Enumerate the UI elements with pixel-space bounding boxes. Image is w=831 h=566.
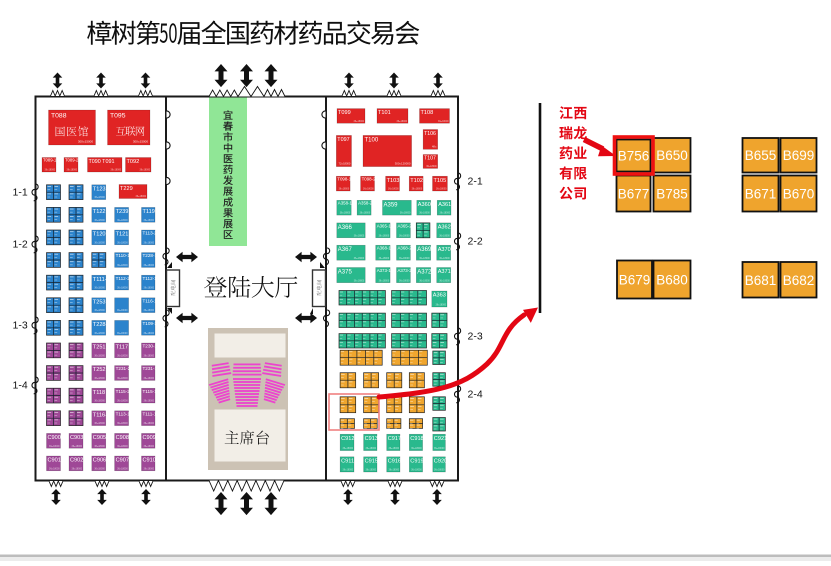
svg-text:T229: T229 [120,186,133,192]
svg-text:B655: B655 [745,148,777,163]
svg-text:T089-2: T089-2 [65,158,79,163]
svg-text:T118: T118 [93,390,105,396]
svg-text:36m18000: 36m18000 [117,446,128,448]
svg-text:36m18000: 36m18000 [343,470,354,472]
svg-text:36m18000: 36m18000 [354,121,365,123]
svg-text:36m18000: 36m18000 [72,468,83,470]
svg-text:36m18000: 36m18000 [117,468,128,470]
svg-text:T103: T103 [387,178,400,184]
svg-text:A365-1: A365-1 [377,223,392,228]
svg-text:36m18000: 36m18000 [144,265,155,267]
svg-text:T121: T121 [116,232,129,238]
svg-text:B680: B680 [656,273,688,288]
svg-text:T109-2: T109-2 [143,321,158,326]
svg-text:36m18000: 36m18000 [94,468,105,470]
svg-text:A369: A369 [417,247,432,253]
svg-text:36m18000: 36m18000 [94,401,105,403]
svg-text:T122: T122 [93,209,106,215]
svg-text:C903: C903 [70,435,83,441]
svg-text:A359: A359 [384,202,399,208]
svg-text:36m18000: 36m18000 [144,333,155,335]
svg-text:T110-1: T110-1 [116,253,131,258]
svg-text:36m18000: 36m18000 [117,401,128,403]
svg-text:36m18000: 36m18000 [411,470,422,472]
svg-text:36m18000: 36m18000 [438,121,449,123]
svg-text:36m18000: 36m18000 [144,468,155,470]
svg-text:36m18000: 36m18000 [354,280,365,282]
svg-text:T120: T120 [93,232,106,238]
svg-text:C902: C902 [70,458,83,464]
svg-text:36m18000: 36m18000 [399,258,410,260]
svg-text:C911: C911 [341,458,354,464]
svg-text:T112-2: T112-2 [116,276,131,281]
svg-text:T111-2: T111-2 [93,277,110,283]
svg-text:36m18000: 36m18000 [411,448,422,450]
svg-text:A373-2: A373-2 [398,268,413,273]
svg-text:36m18000: 36m18000 [379,235,390,237]
svg-text:300m15000: 300m15000 [78,140,94,144]
svg-text:36m18000: 36m18000 [400,213,411,215]
svg-text:36m18000: 36m18000 [419,280,430,282]
svg-text:36m18000: 36m18000 [360,213,371,215]
svg-text:36m18000: 36m18000 [354,258,365,260]
svg-text:36m18000: 36m18000 [340,213,351,215]
svg-text:T102: T102 [410,178,423,184]
svg-text:36m18000: 36m18000 [434,448,445,450]
svg-text:A368-1: A368-1 [377,246,392,251]
svg-text:T106: T106 [424,131,436,137]
svg-text:T116-2: T116-2 [93,412,110,418]
svg-text:36m18000: 36m18000 [117,310,128,312]
svg-text:36m18000: 36m18000 [419,258,430,260]
svg-text:C912: C912 [341,436,354,442]
svg-text:36m18000: 36m18000 [399,280,410,282]
svg-text:72m18000: 72m18000 [339,161,351,165]
svg-text:A365-2: A365-2 [398,223,413,228]
svg-text:36m18000: 36m18000 [49,446,60,448]
svg-text:T116-1: T116-1 [143,298,158,303]
svg-text:C908: C908 [116,435,129,441]
svg-text:2-3: 2-3 [468,331,483,343]
svg-text:T123: T123 [93,186,106,192]
svg-text:A361: A361 [438,202,451,208]
svg-text:A363: A363 [433,293,446,299]
svg-text:T111-1: T111-1 [143,411,157,416]
svg-text:B681: B681 [745,273,777,288]
svg-text:B670: B670 [783,187,815,202]
svg-text:T108: T108 [421,110,434,116]
svg-text:T089-1: T089-1 [43,158,57,163]
svg-text:A375: A375 [338,270,353,276]
svg-text:T112-1: T112-1 [143,276,158,281]
svg-text:36m18000: 36m18000 [94,378,105,380]
svg-text:C909: C909 [143,435,156,441]
svg-text:C915: C915 [365,458,378,464]
svg-text:T230-1: T230-1 [143,344,158,349]
svg-text:T239: T239 [116,209,129,215]
svg-text:B682: B682 [783,273,815,288]
svg-text:C919: C919 [410,458,423,464]
svg-text:C907: C907 [116,458,129,464]
svg-text:36m18000: 36m18000 [117,355,128,357]
svg-text:T101: T101 [378,110,391,116]
svg-text:36m18000: 36m18000 [354,235,365,237]
svg-text:36m18000: 36m18000 [94,242,105,244]
svg-text:B650: B650 [656,148,688,163]
svg-text:T228-1: T228-1 [143,253,158,258]
svg-text:A373-1: A373-1 [377,268,392,273]
svg-text:C917: C917 [388,436,401,442]
svg-text:36m18000: 36m18000 [94,423,105,425]
svg-text:36m18000: 36m18000 [379,258,390,260]
svg-text:1-4: 1-4 [13,380,28,392]
svg-text:36m18000: 36m18000 [72,446,83,448]
svg-text:T088: T088 [51,113,67,120]
svg-text:T098-2: T098-2 [362,177,376,182]
svg-text:36m18000: 36m18000 [94,333,105,335]
svg-text:T100: T100 [365,138,379,144]
svg-text:A370: A370 [438,247,451,253]
svg-text:36m18000: 36m18000 [389,448,400,450]
svg-text:A371: A371 [438,269,451,275]
svg-text:T252: T252 [93,367,106,373]
svg-text:T092: T092 [127,159,140,165]
svg-text:2-1: 2-1 [468,176,483,188]
svg-text:T105: T105 [434,178,447,184]
svg-text:A367: A367 [338,247,353,253]
svg-text:1-3: 1-3 [13,320,28,332]
svg-text:36m18000: 36m18000 [117,288,128,290]
svg-text:T090 T091: T090 T091 [89,159,115,165]
svg-text:36m18000: 36m18000 [412,189,423,191]
svg-text:36m18000: 36m18000 [144,242,155,244]
svg-text:T113-2: T113-2 [143,231,158,236]
svg-text:36m18000: 36m18000 [440,213,451,215]
svg-text:36m18000: 36m18000 [144,401,155,403]
svg-text:B785: B785 [656,187,688,202]
svg-text:36m18000: 36m18000 [434,470,445,472]
svg-text:36m18000: 36m18000 [436,305,447,307]
svg-text:36m18000: 36m18000 [144,423,155,425]
svg-text:36m18000: 36m18000 [67,170,78,172]
svg-text:A366: A366 [338,225,353,231]
svg-text:C918: C918 [410,436,423,442]
svg-text:36m18000: 36m18000 [117,423,128,425]
svg-text:36m18000: 36m18000 [94,446,105,448]
svg-text:T098-1: T098-1 [337,177,351,182]
svg-text:A358-1: A358-1 [338,201,353,206]
svg-text:C910: C910 [143,458,156,464]
svg-text:36m18000: 36m18000 [339,189,350,191]
svg-text:36m18000: 36m18000 [117,220,128,222]
svg-text:36m18000: 36m18000 [439,258,450,260]
svg-text:T113-1: T113-1 [116,411,131,416]
svg-text:T228-2: T228-2 [93,322,111,328]
svg-text:36m18000: 36m18000 [117,265,128,267]
svg-text:36m18000: 36m18000 [399,235,410,237]
svg-text:36m18000: 36m18000 [117,242,128,244]
svg-text:300m15000: 300m15000 [133,140,149,144]
svg-text:A372: A372 [417,270,432,276]
svg-text:36m18000: 36m18000 [389,470,400,472]
svg-text:36m18000: 36m18000 [140,170,151,172]
svg-text:36m18000: 36m18000 [144,220,155,222]
svg-text:300m120000: 300m120000 [395,161,411,165]
svg-text:36m18000: 36m18000 [363,189,374,191]
svg-text:C916: C916 [388,458,401,464]
svg-text:36m18000: 36m18000 [366,448,377,450]
svg-text:1-1: 1-1 [13,187,28,199]
svg-text:36m18000: 36m18000 [379,280,390,282]
svg-text:B699: B699 [783,148,815,163]
svg-text:36m18000: 36m18000 [144,378,155,380]
svg-text:C905: C905 [93,435,106,441]
svg-text:C921: C921 [434,436,447,442]
svg-text:B679: B679 [619,273,651,288]
svg-text:A368-2: A368-2 [398,246,413,251]
svg-text:36m18000: 36m18000 [94,310,105,312]
svg-text:B677: B677 [618,187,650,202]
svg-text:36m18000: 36m18000 [117,378,128,380]
svg-text:C901: C901 [48,458,61,464]
svg-text:36m18000: 36m18000 [45,170,56,172]
svg-text:A360: A360 [418,202,431,208]
svg-text:36m18000: 36m18000 [436,189,447,191]
svg-text:36m18000: 36m18000 [144,310,155,312]
svg-text:36m18000: 36m18000 [397,121,408,123]
svg-text:T251: T251 [93,345,106,351]
svg-text:36m18000: 36m18000 [439,280,450,282]
svg-text:T119: T119 [143,209,155,215]
svg-text:36m18000: 36m18000 [94,197,105,199]
svg-text:C913: C913 [365,436,378,442]
svg-text:36m18000: 36m18000 [439,235,450,237]
svg-text:2-2: 2-2 [468,236,483,248]
svg-text:36m18000: 36m18000 [144,355,155,357]
svg-text:36m18000: 36m18000 [419,213,430,215]
svg-text:36m18000: 36m18000 [117,333,128,335]
svg-text:T099: T099 [338,110,351,116]
svg-text:A358-2: A358-2 [358,201,373,206]
svg-text:36m18000: 36m18000 [136,196,147,198]
svg-text:2-4: 2-4 [468,389,483,401]
svg-text:36m18000: 36m18000 [49,468,60,470]
svg-text:A362: A362 [438,225,451,231]
svg-text:36m18000: 36m18000 [94,220,105,222]
svg-text:T253: T253 [93,299,106,305]
svg-text:T115-2: T115-2 [116,389,131,394]
svg-text:36m18000: 36m18000 [388,189,399,191]
svg-text:T097: T097 [337,137,349,143]
svg-text:C920: C920 [434,458,447,464]
svg-text:B671: B671 [745,187,777,202]
svg-text:36m18000: 36m18000 [94,288,105,290]
svg-text:C906: C906 [93,458,106,464]
svg-text:T107: T107 [424,156,436,162]
svg-text:T115-1: T115-1 [143,389,158,394]
svg-text:36m18000: 36m18000 [426,166,437,168]
svg-text:36m18000: 36m18000 [144,288,155,290]
svg-text:36m18000: 36m18000 [343,448,354,450]
svg-text:36m18000: 36m18000 [94,355,105,357]
svg-text:B756: B756 [618,149,650,164]
svg-text:T231-2: T231-2 [116,366,131,371]
svg-text:C900: C900 [48,435,61,441]
svg-text:36m18000: 36m18000 [366,470,377,472]
svg-text:36m18000: 36m18000 [111,170,122,172]
svg-text:T231-1: T231-1 [143,366,158,371]
svg-text:T095: T095 [110,113,126,120]
svg-text:1-2: 1-2 [13,239,28,251]
svg-text:36m18000: 36m18000 [144,446,155,448]
svg-text:T117: T117 [116,345,128,351]
